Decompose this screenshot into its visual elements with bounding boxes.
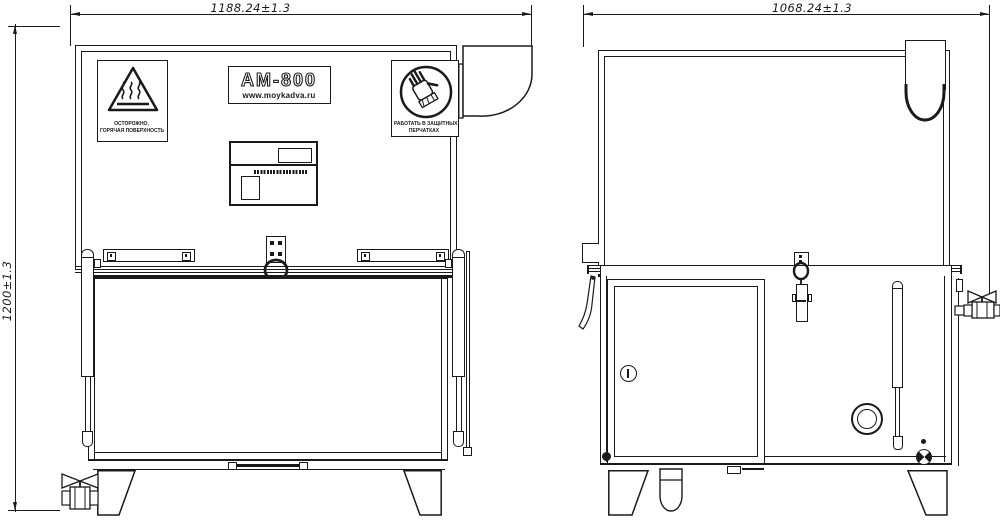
grounding-symbol-icon xyxy=(916,449,932,465)
height-dim-label: 1200±1.3 xyxy=(0,251,14,331)
bolt-icon xyxy=(107,252,116,261)
gas-spring-side-cylinder xyxy=(892,288,903,388)
extension-line xyxy=(989,5,990,295)
extension-line xyxy=(70,5,71,46)
clamp-profile-ring xyxy=(791,262,811,286)
drain-valve-side xyxy=(953,289,1000,329)
bolt-icon xyxy=(270,252,274,256)
clamp-line xyxy=(797,300,806,302)
gas-spring-left-cylinder xyxy=(81,257,94,377)
control-display xyxy=(278,148,312,163)
mounting-foot xyxy=(727,466,741,474)
technical-drawing: 1188.24±1.3 1068.24±1.3 1200±1.3 ОСТОРОЖ… xyxy=(0,0,1000,523)
hood-lip-bracket xyxy=(582,243,599,263)
clamp-profile-body xyxy=(796,284,808,322)
drain-pipe-line xyxy=(237,464,299,467)
panel-divider xyxy=(231,164,316,166)
lid-split-line xyxy=(75,272,460,273)
website-label: www.moykadva.ru xyxy=(229,91,329,100)
bolt-icon xyxy=(278,241,282,245)
gloves-warning-text-1: РАБОТАТЬ В ЗАЩИТНЫХ xyxy=(394,121,454,127)
gas-spring-right-rod xyxy=(456,376,462,434)
control-panel xyxy=(229,141,318,206)
clamp-tab xyxy=(808,294,812,302)
bolt-icon xyxy=(799,255,802,258)
drip-edge xyxy=(587,265,589,274)
leg-front-right xyxy=(402,470,442,516)
extension-line xyxy=(8,26,60,27)
control-switch xyxy=(241,176,260,200)
drain-cylinder xyxy=(657,468,685,516)
door-hinge-pin xyxy=(602,452,611,461)
gas-spring-right-cylinder xyxy=(452,257,465,377)
tank-bottom-line xyxy=(94,452,442,453)
hot-warning-text-2: ГОРЯЧАЯ ПОВЕРХНОСТЬ xyxy=(100,128,163,134)
dim-arrow-icon xyxy=(980,12,989,16)
bolt-icon xyxy=(436,252,445,261)
side-hood-inner-line xyxy=(604,56,944,266)
gas-spring-side-foot xyxy=(893,436,903,450)
release-lever xyxy=(578,274,602,330)
linkage-bar xyxy=(466,251,470,451)
pilot-dot xyxy=(921,439,926,444)
bolt-icon xyxy=(182,252,191,261)
exhaust-duct-icon xyxy=(450,40,536,124)
model-label: АМ-800 xyxy=(229,71,329,89)
linkage-foot xyxy=(463,447,472,456)
leg-side-left xyxy=(608,470,650,516)
wall-line xyxy=(441,278,442,461)
extension-line xyxy=(8,510,60,511)
spring-bracket xyxy=(445,259,452,268)
dim-arrow-icon xyxy=(522,12,531,16)
extension-line xyxy=(583,5,584,47)
dim-arrow-icon xyxy=(71,12,80,16)
hot-surface-warning-label: ОСТОРОЖНО, ГОРЯЧАЯ ПОВЕРХНОСТЬ xyxy=(97,60,168,142)
exhaust-duct-side-elbow xyxy=(901,84,950,128)
bolt-icon xyxy=(270,241,274,245)
front-tank-body xyxy=(88,278,448,461)
leg-side-right xyxy=(906,470,948,516)
gas-spring-left-rod xyxy=(85,376,91,434)
lock-slot xyxy=(627,369,629,378)
side-width-dim-label: 1068.24±1.3 xyxy=(742,1,882,15)
hot-warning-text-1: ОСТОРОЖНО, xyxy=(100,121,163,127)
hot-surface-icon xyxy=(106,65,160,115)
lid-split-line xyxy=(75,266,460,267)
panel-microtext xyxy=(254,170,308,174)
gloves-icon xyxy=(398,64,454,120)
lid-hinge-bar-left xyxy=(103,249,195,262)
gloves-warning-text-2: ПЕРЧАТКАХ xyxy=(394,128,454,134)
base-line xyxy=(93,469,445,470)
spring-bracket xyxy=(94,259,101,268)
lid-split-line xyxy=(75,269,460,270)
gas-spring-right-foot xyxy=(453,431,464,447)
front-width-dim-label: 1188.24±1.3 xyxy=(178,1,323,15)
dim-arrow-icon xyxy=(584,12,593,16)
drain-pipe-line xyxy=(742,468,764,470)
gloves-warning-label: РАБОТАТЬ В ЗАЩИТНЫХ ПЕРЧАТКАХ xyxy=(391,60,459,137)
gas-spring-left-foot xyxy=(82,431,93,447)
inspection-port-inner xyxy=(857,409,877,429)
wall-line xyxy=(944,276,945,462)
drain-valve-front xyxy=(58,471,104,513)
drip-edge xyxy=(960,265,962,274)
clamp-tab xyxy=(792,294,796,302)
height-dim-line xyxy=(15,24,16,512)
nameplate: АМ-800 www.moykadva.ru xyxy=(228,66,331,104)
door-lock xyxy=(620,365,637,382)
lid-hinge-bar-right xyxy=(357,249,449,262)
gas-spring-side-rod xyxy=(895,387,900,438)
exhaust-duct-side-tube xyxy=(905,40,946,90)
bolt-icon xyxy=(278,252,282,256)
bolt-icon xyxy=(361,252,370,261)
wall-line xyxy=(94,278,95,461)
